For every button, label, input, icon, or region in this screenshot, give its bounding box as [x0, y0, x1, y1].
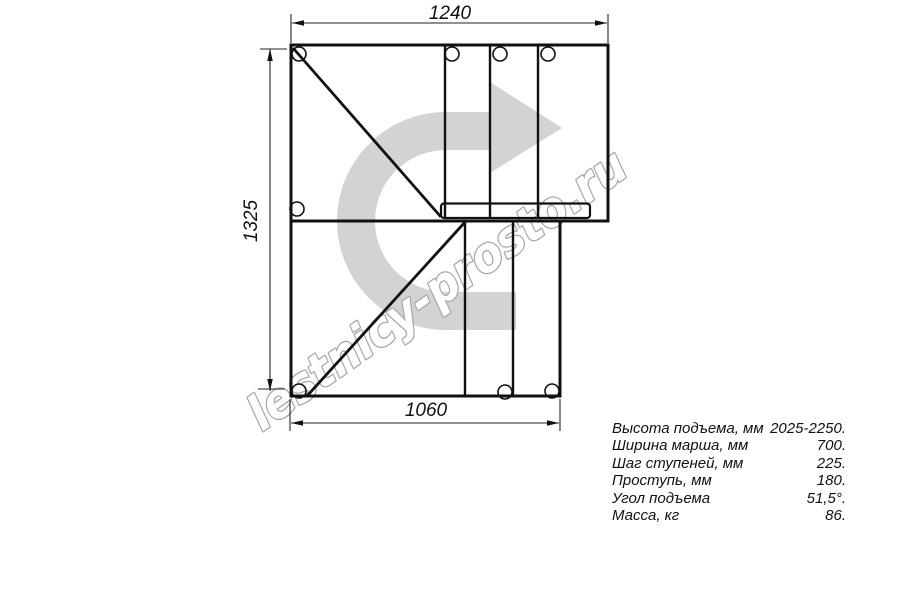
stair-plan-drawing: lestnicy-prosto.ru [0, 0, 900, 600]
spec-label: Проступь, мм [612, 472, 712, 489]
spec-value: 700. [817, 437, 846, 454]
spec-value: 180. [817, 472, 846, 489]
spec-label: Ширина марша, мм [612, 437, 748, 454]
spec-label: Высота подъема, мм [612, 420, 764, 437]
spec-row-height: Высота подъема, мм 2025-2250. [612, 420, 846, 437]
spec-row-mass: Масса, кг 86. [612, 507, 846, 524]
spec-value: 86. [825, 507, 846, 524]
dimension-left: 1325 [241, 49, 287, 391]
dim-arrowhead [292, 20, 304, 26]
dimension-top: 1240 [291, 3, 608, 43]
mount-hole-circle [541, 47, 555, 61]
dimension-left-value: 1325 [241, 199, 262, 242]
dim-arrowhead [547, 420, 559, 426]
spec-label: Масса, кг [612, 507, 679, 524]
dim-arrowhead [267, 49, 273, 61]
spec-row-tread: Проступь, мм 180. [612, 472, 846, 489]
dimension-bottom-value: 1060 [405, 400, 448, 421]
dimension-top-value: 1240 [429, 3, 472, 24]
spec-value: 51,5°. [807, 490, 846, 507]
dimension-bottom: 1060 [290, 399, 560, 431]
spec-value: 2025-2250. [770, 420, 846, 437]
spec-row-angle: Угол подъема 51,5°. [612, 490, 846, 507]
mount-hole-circle [445, 47, 459, 61]
spec-label: Шаг ступеней, мм [612, 455, 743, 472]
mount-hole-circle [493, 47, 507, 61]
specifications-table: Высота подъема, мм 2025-2250. Ширина мар… [612, 420, 846, 524]
spec-value: 225. [817, 455, 846, 472]
spec-label: Угол подъема [612, 490, 710, 507]
dim-arrowhead [595, 20, 607, 26]
spec-row-flight-width: Ширина марша, мм 700. [612, 437, 846, 454]
spec-row-step-pitch: Шаг ступеней, мм 225. [612, 455, 846, 472]
